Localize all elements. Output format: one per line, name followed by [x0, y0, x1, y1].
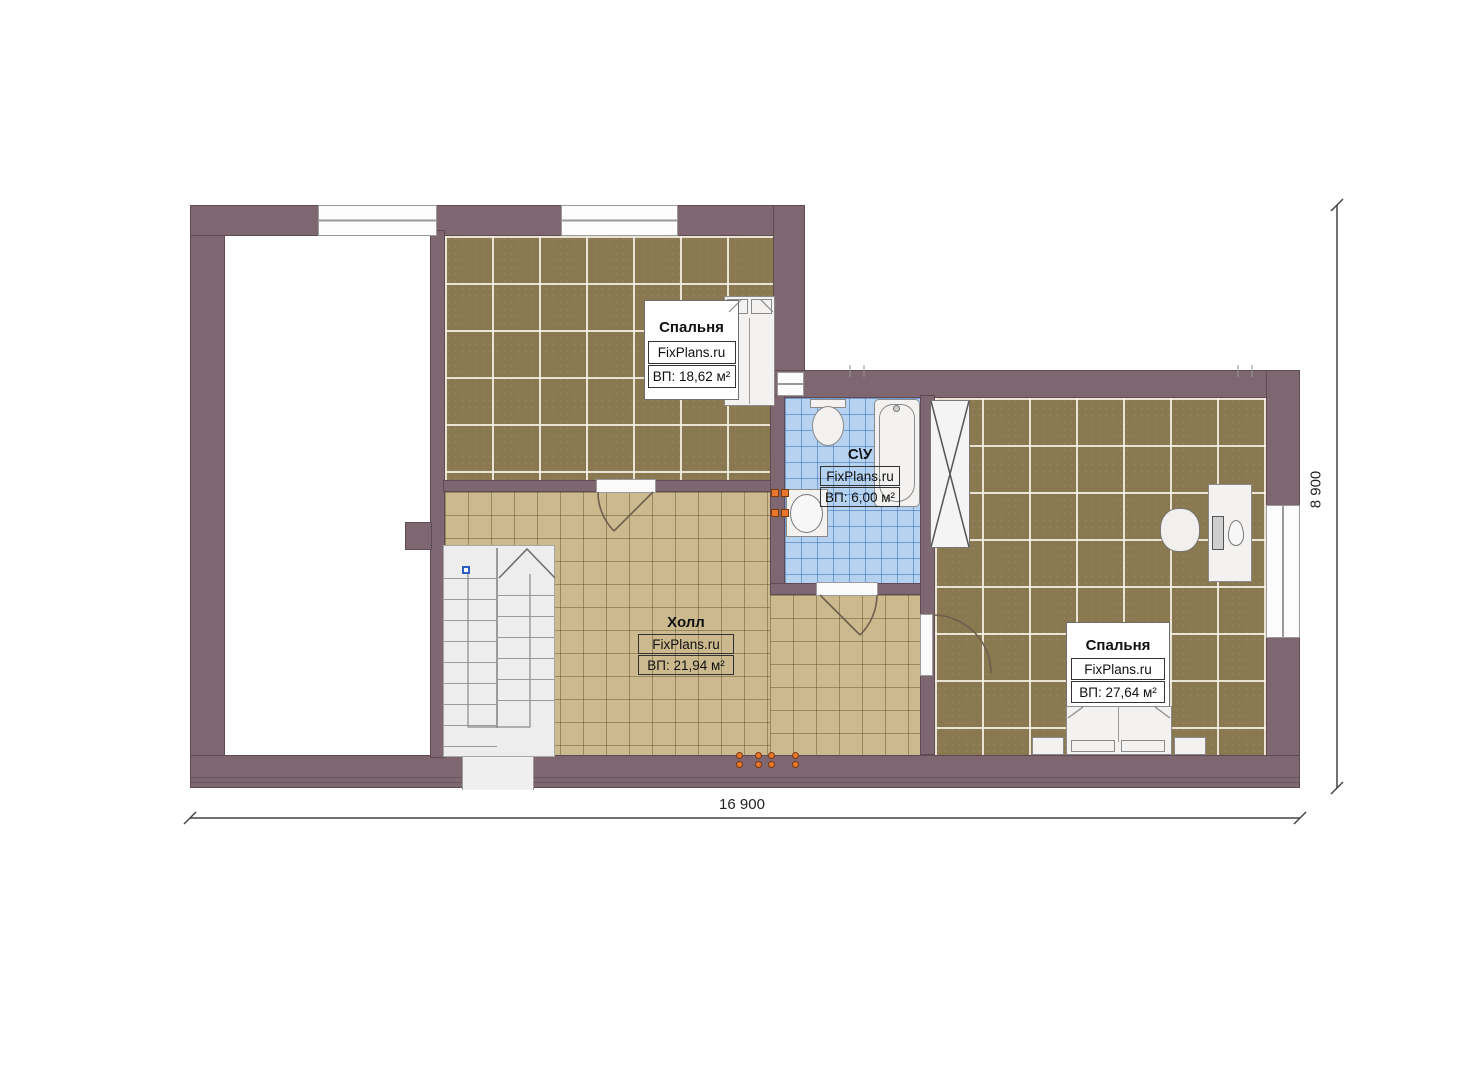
bathroom-title: С\У: [820, 446, 900, 463]
bed2-pillow-left: [1071, 740, 1115, 752]
monitor-icon: [1212, 516, 1224, 550]
staircase-divider: [496, 548, 498, 728]
bed2-split: [1118, 706, 1119, 742]
toilet-icon: [812, 406, 844, 446]
sink-icon: [790, 494, 823, 533]
window-top-2: [561, 205, 678, 236]
outlet-icon-bath-4: [781, 509, 789, 517]
void-room-floor: [225, 236, 430, 758]
outlet-icon-hall-4a: [792, 752, 799, 759]
bathroom-watermark: FixPlans.ru: [820, 466, 900, 486]
door-bedroom2-leaf: [920, 614, 933, 676]
bedroom-1-label: Спальня FixPlans.ru ВП: 18,62 м²: [644, 300, 739, 400]
wall-top-exterior: [190, 205, 805, 236]
bedroom-2-title: Спальня: [1086, 637, 1151, 654]
wall-pilaster: [405, 522, 432, 550]
hall-area: ВП: 21,94 м²: [638, 655, 734, 675]
bedroom-1-watermark: FixPlans.ru: [648, 341, 736, 364]
window-top-1: [318, 205, 437, 236]
outlet-icon-bath-1: [771, 489, 779, 497]
outlet-icon-bath-2: [781, 489, 789, 497]
ventilation-shaft: [930, 400, 970, 548]
wall-bottom-exterior: [190, 755, 1300, 788]
outlet-icon-hall-1a: [736, 752, 743, 759]
dimension-label-width: 16 900: [687, 796, 797, 813]
bedroom-2-label: Спальня FixPlans.ru ВП: 27,64 м²: [1066, 622, 1170, 710]
outlet-icon-hall-2b: [755, 761, 762, 768]
hall-floor-east: [770, 595, 920, 755]
bed1-pillow-right: [751, 299, 772, 314]
chair-icon: [1160, 508, 1200, 552]
staircase-flight-right: [497, 575, 554, 701]
door-bathroom-opening: [816, 582, 878, 596]
bed1-split: [749, 318, 750, 404]
bedroom-2-watermark: FixPlans.ru: [1071, 658, 1165, 680]
doorway-bottom: [462, 753, 534, 790]
dimension-label-height: 8 900: [1308, 450, 1325, 530]
nightstand-icon-left: [1032, 737, 1064, 755]
outlet-icon-hall-3b: [768, 761, 775, 768]
outlet-icon-hall-3a: [768, 752, 775, 759]
wall-bedroom1-right: [773, 205, 805, 372]
staircase-marker: [462, 566, 470, 574]
window-right: [1266, 505, 1300, 638]
bedroom-1-area: ВП: 18,62 м²: [648, 365, 736, 388]
hall-title: Холл: [638, 614, 734, 631]
nightstand-icon-right: [1174, 737, 1206, 755]
bedroom-1-title: Спальня: [659, 319, 724, 336]
door-bedroom1-opening: [596, 479, 656, 493]
wall-wing-top-exterior: [773, 370, 1300, 398]
outlet-icon-hall-2a: [755, 752, 762, 759]
floor-plan-canvas: Спальня FixPlans.ru ВП: 18,62 м² С\У Fix…: [0, 0, 1474, 1080]
wall-left-exterior: [190, 205, 225, 788]
bathtub-faucet-icon: [893, 405, 900, 412]
hall-watermark: FixPlans.ru: [638, 634, 734, 654]
outlet-icon-bath-3: [771, 509, 779, 517]
staircase-flight-left: [444, 558, 497, 755]
keyboard-icon: [1228, 520, 1244, 546]
bedroom-2-area: ВП: 27,64 м²: [1071, 681, 1165, 703]
outlet-icon-hall-4b: [792, 761, 799, 768]
window-bathroom-top: [777, 372, 804, 396]
dimension-ticks-right: [1331, 199, 1343, 794]
bed2-pillow-right: [1121, 740, 1165, 752]
outlet-icon-hall-1b: [736, 761, 743, 768]
dimension-ticks-bottom: [184, 812, 1306, 824]
bathroom-area: ВП: 6,00 м²: [820, 487, 900, 507]
